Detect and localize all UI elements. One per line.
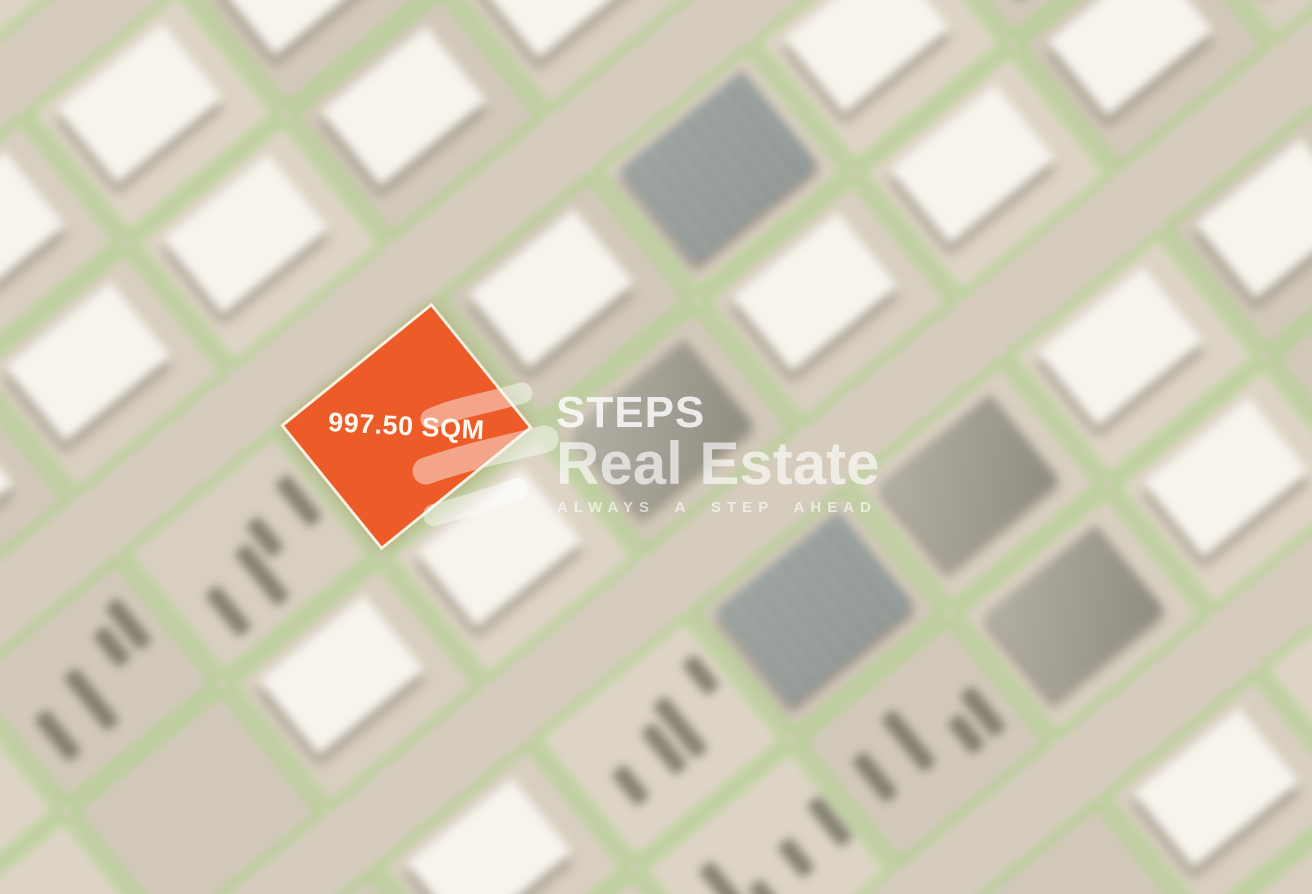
watermark-brand-line2: Real Estate <box>556 434 880 494</box>
building-footprint <box>0 0 75 1</box>
yard-clutter <box>204 585 251 638</box>
listing-map-image: 997.50 SQM STEPS Real Estate ALWAYS A ST… <box>0 0 1312 894</box>
yard-clutter <box>880 709 936 773</box>
building-footprint <box>1047 0 1213 116</box>
building-footprint <box>478 0 644 59</box>
building-footprint <box>1195 139 1312 299</box>
yard-clutter <box>234 543 290 607</box>
building-footprint <box>1037 266 1203 426</box>
building-footprint <box>1133 707 1299 867</box>
building-footprint <box>0 409 13 569</box>
building-footprint <box>0 151 65 311</box>
building-footprint <box>406 777 572 894</box>
yard-clutter <box>776 837 815 879</box>
yard-clutter <box>275 474 322 527</box>
yard-clutter <box>698 860 745 894</box>
yard-clutter <box>611 765 650 807</box>
building-footprint <box>879 394 1059 569</box>
building-footprint <box>784 0 950 114</box>
yard-clutter <box>34 709 81 762</box>
building-footprint <box>57 23 223 183</box>
watermark-tagline: ALWAYS A STEP AHEAD <box>557 500 877 515</box>
steps-logo-swoosh-icon <box>405 363 570 533</box>
building-footprint <box>215 0 381 56</box>
watermark-brand-line1: STEPS <box>556 391 705 435</box>
building-footprint <box>468 209 634 369</box>
yard-clutter <box>63 667 119 731</box>
yard-clutter <box>747 879 803 894</box>
yard-clutter <box>682 654 721 696</box>
yard-clutter <box>851 750 898 803</box>
